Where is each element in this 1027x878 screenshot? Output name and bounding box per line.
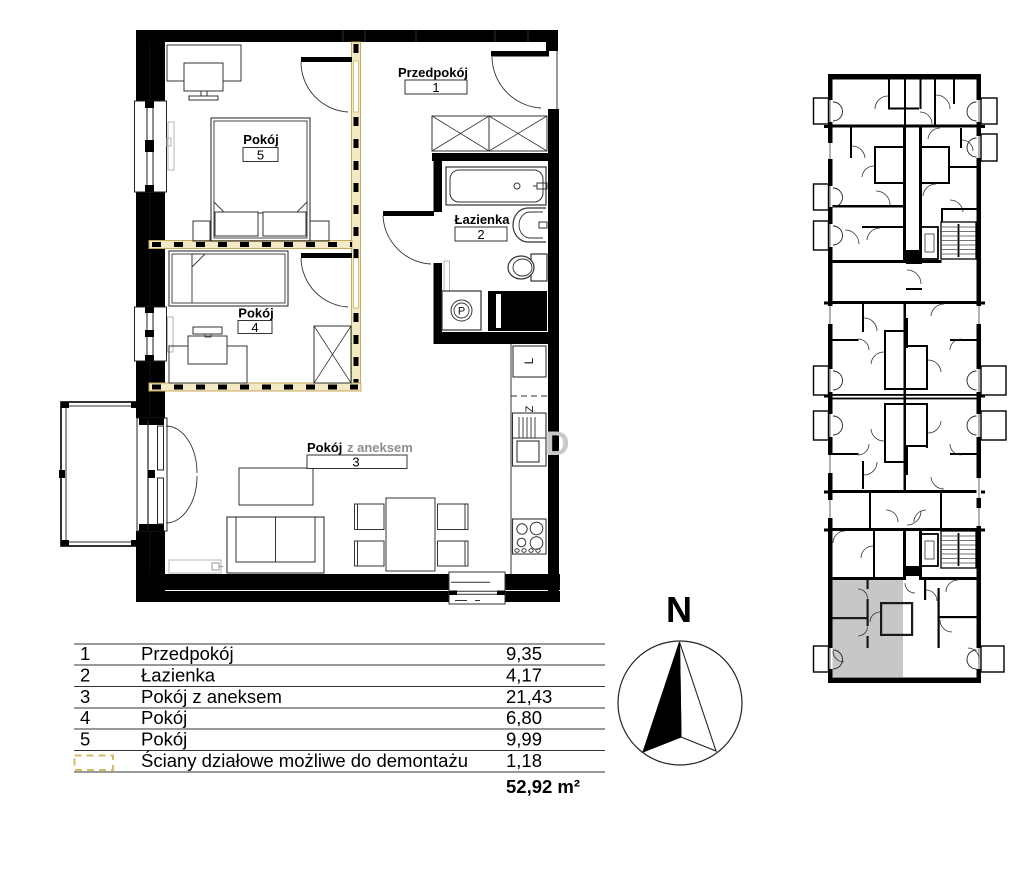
svg-text:Pokój z aneksem: Pokój z aneksem <box>141 686 282 707</box>
svg-text:2: 2 <box>477 227 484 242</box>
svg-text:1: 1 <box>432 80 439 95</box>
svg-text:Z: Z <box>524 405 536 412</box>
svg-text:Łazienka: Łazienka <box>141 665 216 686</box>
svg-text:4: 4 <box>251 320 258 335</box>
svg-text:6,80: 6,80 <box>506 707 542 728</box>
svg-text:Pokój: Pokój <box>243 132 278 147</box>
svg-text:4: 4 <box>80 707 90 728</box>
svg-text:Przedpokój: Przedpokój <box>141 643 234 664</box>
svg-text:9,99: 9,99 <box>506 729 542 750</box>
svg-text:N: N <box>666 589 692 630</box>
svg-text:4,17: 4,17 <box>506 665 542 686</box>
svg-text:5: 5 <box>257 148 264 163</box>
svg-text:Pokój: Pokój <box>238 306 273 321</box>
svg-text:Ściany działowe możliwe do dem: Ściany działowe możliwe do demontażu <box>141 750 468 771</box>
svg-text:D: D <box>545 425 570 463</box>
svg-text:1: 1 <box>80 643 90 664</box>
svg-text:z aneksem: z aneksem <box>347 440 413 455</box>
svg-text:9,35: 9,35 <box>506 643 542 664</box>
svg-text:1,18: 1,18 <box>506 750 542 771</box>
svg-text:Łazienka: Łazienka <box>455 212 511 227</box>
svg-text:3: 3 <box>352 455 359 470</box>
svg-text:21,43: 21,43 <box>506 686 552 707</box>
svg-text:3: 3 <box>80 686 90 707</box>
svg-text:Pokój: Pokój <box>141 729 187 750</box>
svg-text:P: P <box>458 306 465 318</box>
svg-text:2: 2 <box>80 665 90 686</box>
svg-text:L: L <box>522 357 536 364</box>
svg-text:Pokój: Pokój <box>307 440 342 455</box>
svg-text:Przedpokój: Przedpokój <box>398 65 468 80</box>
svg-text:5: 5 <box>80 729 90 750</box>
svg-text:52,92 m²: 52,92 m² <box>506 776 580 797</box>
svg-text:Pokój: Pokój <box>141 707 187 728</box>
